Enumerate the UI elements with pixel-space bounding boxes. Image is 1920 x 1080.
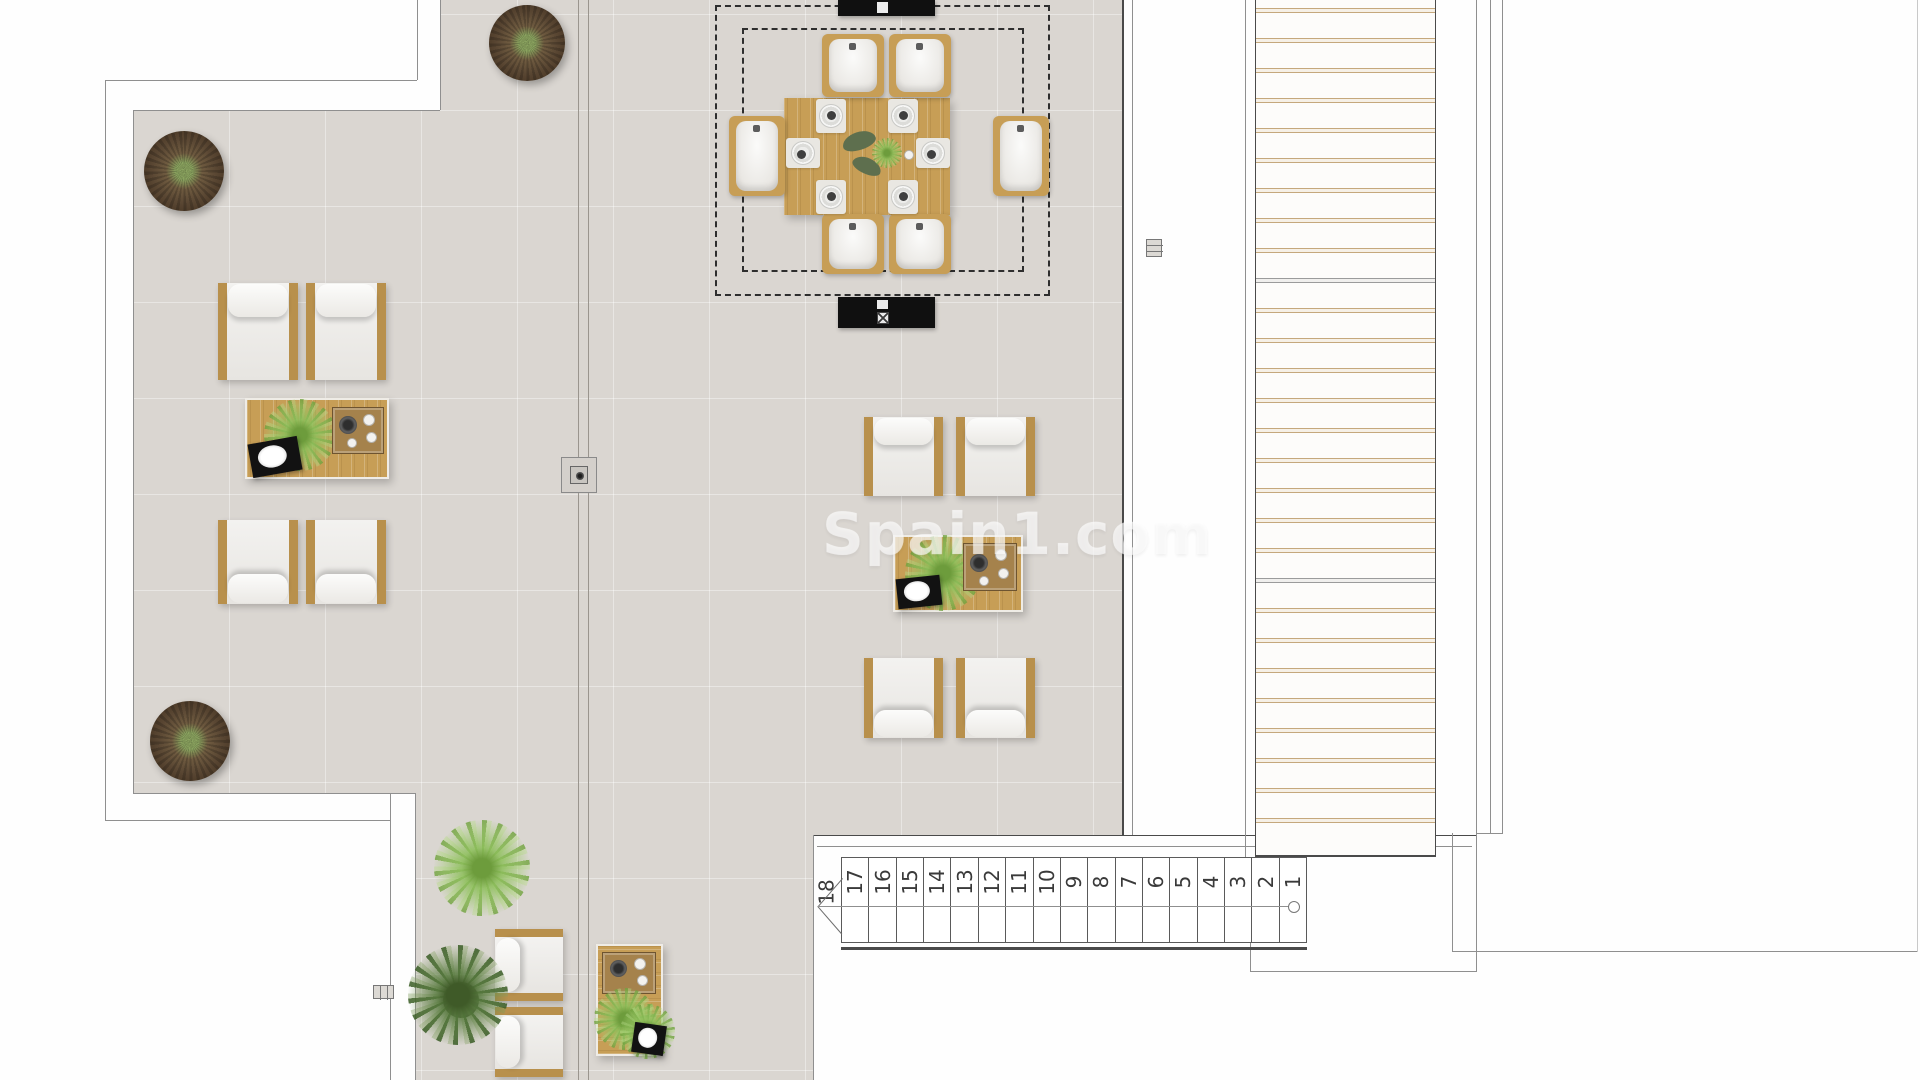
deck-slat [1256,728,1435,733]
stair-step-number: 4 [1201,876,1221,889]
wall-line [813,835,814,1080]
stair-step: 11 [1006,858,1033,942]
floor-drain-inner [570,466,588,484]
black-tray [896,575,943,609]
stair-step: 17 [842,858,869,942]
stair-step-number-18: 18 [815,879,839,904]
lounge-chair [218,283,298,380]
dish-item [899,192,908,201]
unit-detail [877,2,888,13]
lounge-chair [306,520,386,604]
deck-slat [1256,98,1435,103]
stair-step: 16 [869,858,896,942]
deck-slat [1256,128,1435,133]
dining-chair [889,34,951,97]
potted-tree [150,701,230,781]
dish-item [827,111,836,120]
stair-step-number: 7 [1119,876,1139,889]
stair-step-number: 1 [1283,876,1303,889]
deck-slat [1256,758,1435,763]
dining-chair [822,34,884,97]
stair-step-number: 2 [1256,876,1276,889]
place-setting [816,99,846,133]
wall-line [1476,833,1503,834]
wall-line [417,0,418,80]
deck-slat [1256,428,1435,433]
wall-line [105,80,106,820]
stair-step: 10 [1034,858,1061,942]
wall-line [105,820,390,821]
stair-step-number: 5 [1173,876,1193,889]
glass-wall-line [1122,0,1124,835]
stair-step: 8 [1088,858,1115,942]
wall-line [1250,971,1476,972]
deck-slat [1256,68,1435,73]
wall-line [1917,0,1918,952]
deck-slat [1256,578,1435,583]
deck-slat [1256,788,1435,793]
deck-slat [1256,368,1435,373]
lounge-chair [956,658,1035,738]
stair-step-number: 11 [1009,869,1029,894]
lounge-chair [864,417,943,496]
wall-line [133,793,415,794]
wall-line [133,110,134,793]
kettle [339,416,357,434]
lounge-chair [306,283,386,380]
stair-walk-line [818,906,1290,907]
lounge-chair [956,417,1035,496]
drain-channel-line [588,0,589,1080]
deck-slat [1256,278,1435,283]
cup [979,576,989,586]
wall-line [440,0,441,110]
deck-slat [1256,518,1435,523]
serving-tray [332,407,384,454]
deck-slat [1256,338,1435,343]
deck-slat [1256,638,1435,643]
deck-slat [1256,398,1435,403]
lounge-chair [495,1007,563,1077]
grass-plant [408,945,508,1045]
deck-slat [1256,548,1435,553]
stair-direction-arrow [817,906,842,935]
deck-slat [1256,488,1435,493]
black-tray [631,1022,667,1056]
floor-plan-canvas: 1716151413121110987654321 18 [0,0,1920,1080]
lounge-chair [218,520,298,604]
stair-walk-line-start [1288,901,1300,913]
stair-step: 9 [1061,858,1088,942]
wall-line [133,110,440,111]
stair-step-number: 3 [1228,876,1248,889]
deck-slat [1256,248,1435,253]
dining-chair [889,214,951,274]
stair-step: 4 [1198,858,1225,942]
stair-step-number: 10 [1037,869,1057,894]
place-setting [888,99,918,133]
deck-slat [1256,458,1435,463]
potted-tree [489,5,565,81]
cup [347,438,357,448]
wall-line [415,793,416,1080]
deck-slat [1256,818,1435,823]
stair-step: 12 [979,858,1006,942]
deck-slat [1256,8,1435,13]
wall-line [390,793,391,1080]
fern-plant [434,820,530,916]
place-setting [816,180,846,214]
cup [363,414,375,426]
dish-item [927,150,936,159]
stair-step: 3 [1225,858,1252,942]
stair-step: 6 [1143,858,1170,942]
dining-chair [729,116,785,196]
place-setting [916,138,950,168]
cup [634,958,646,970]
slatted-deck [1255,0,1436,857]
cup [366,432,377,443]
floor-drain-core [576,472,584,480]
cup [637,975,648,986]
stair-step-cells: 1716151413121110987654321 [841,857,1307,943]
wall-line [1502,0,1503,833]
deck-slat [1256,668,1435,673]
stair-step: 14 [924,858,951,942]
place-setting [786,138,820,168]
wall-line [1245,0,1246,857]
drain-channel-line [578,0,579,1080]
kettle [610,960,627,977]
stair-step-number: 14 [927,869,947,894]
wall-line [105,80,417,81]
cup [995,549,1007,561]
wall-line [1132,0,1133,835]
place-setting [888,180,918,214]
deck-slat-group [1256,0,1435,855]
wall-line [1452,951,1918,952]
deck-slat [1256,308,1435,313]
stair-step: 2 [1252,858,1279,942]
deck-slat [1256,608,1435,613]
dish-item [827,192,836,201]
potted-tree [144,131,224,211]
dish-item [899,111,908,120]
dining-chair [822,214,884,274]
builtin-unit-top [838,0,935,16]
floor-drain [561,457,597,493]
table-bowl [904,150,914,160]
wall-line [1476,0,1477,972]
deck-slat [1256,218,1435,223]
stair-step-number: 9 [1064,876,1084,889]
lounge-chair [864,658,943,738]
stair-step: 7 [1116,858,1143,942]
kettle [970,554,988,572]
stair-step-number: 15 [900,869,920,894]
deck-slat [1256,188,1435,193]
stair-step: 13 [951,858,978,942]
wall-line [1452,833,1453,952]
stair-step-number: 13 [955,869,975,894]
wall-connection-marker [1146,239,1162,257]
table-centerpiece-plant [872,138,902,168]
stair-step-number: 12 [982,869,1002,894]
stair-step-number: 6 [1146,876,1166,889]
wall-line [1490,0,1491,833]
unit-detail [877,300,888,309]
unit-x-symbol [877,312,889,324]
builtin-unit-bottom [838,297,935,328]
dish-item [797,150,806,159]
dining-chair [993,116,1049,196]
serving-tray [963,543,1017,591]
stair-step-number: 17 [845,869,865,894]
deck-slat [1256,38,1435,43]
cup [998,568,1009,579]
stair-step: 1 [1280,858,1306,942]
terrace-floor-right-strip [415,793,1122,835]
stair-bottom-edge [841,947,1307,950]
stair-step-number: 8 [1091,876,1111,889]
wall-connection-marker [373,985,394,999]
deck-slat [1256,158,1435,163]
deck-slat [1256,698,1435,703]
stair-step: 15 [897,858,924,942]
stair-step: 5 [1170,858,1197,942]
stair-step-number: 16 [873,869,893,894]
